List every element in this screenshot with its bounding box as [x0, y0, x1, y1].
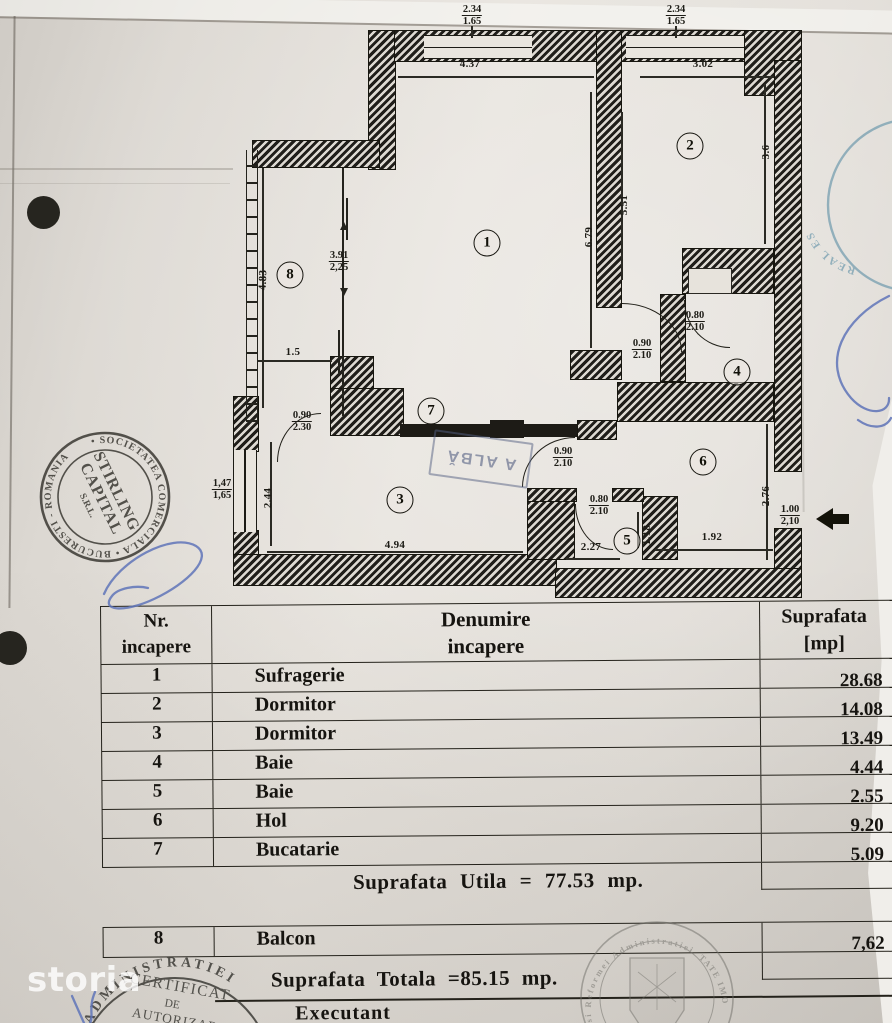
room-number: 7	[418, 398, 445, 425]
alba-rect-stamp: A ALBĂ	[428, 429, 533, 488]
dimension-fraction-label: 3.912,25	[329, 250, 349, 273]
dimension-label: 2.44	[262, 488, 274, 508]
wall	[617, 382, 774, 422]
dimension-fraction-label: 1.002,10	[780, 504, 800, 527]
suprafata-totala: Suprafata Totala =85.15 mp.	[271, 965, 558, 992]
window	[626, 35, 744, 59]
header-denumire: Denumireincapere	[212, 602, 759, 663]
dimension-label: 3.02	[693, 58, 713, 70]
wall	[527, 488, 577, 502]
dimension-fraction-label: 0.802.10	[685, 310, 705, 333]
wall	[774, 60, 802, 472]
wall	[527, 500, 575, 560]
wall-notch	[688, 268, 732, 294]
exterior-wall	[233, 554, 557, 586]
window	[424, 35, 532, 59]
scanned-floor-plan-document: A ALBĂ 4.373.023.65.516.794.831.52.444.9…	[0, 0, 892, 1023]
row-name: Dormitor	[213, 689, 760, 721]
dimension-line	[655, 549, 773, 551]
wall	[577, 420, 617, 440]
dimension-fraction-label: 2.341.65	[666, 4, 686, 27]
dimension-label: 4.37	[460, 58, 480, 70]
storia-watermark: storia	[27, 960, 141, 1000]
wall	[570, 350, 622, 380]
dimension-fraction-label: 2.341.65	[462, 4, 482, 27]
dimension-line	[764, 84, 766, 244]
row-area: 28.68	[759, 659, 892, 688]
balcony-glazing-line	[338, 330, 340, 374]
room-number: 1	[474, 230, 501, 257]
wall	[490, 420, 524, 438]
wall	[612, 488, 644, 502]
room-number: 5	[614, 528, 641, 555]
dimension-line	[398, 76, 594, 78]
row-nr: 3	[101, 722, 213, 751]
dimension-line	[640, 76, 774, 78]
dimension-label: 4.94	[385, 539, 405, 551]
dimension-fraction-label: 0.902.10	[553, 446, 573, 469]
row-name: Baie	[213, 747, 760, 779]
dimension-fraction-label: 1,471,65	[212, 478, 232, 501]
row-area: 9.20	[761, 804, 892, 833]
table-header-row: Nr.incapere Denumireincapere Suprafata[m…	[100, 600, 892, 664]
alba-stamp-text: A ALBĂ	[444, 445, 517, 473]
row-area: 14.08	[760, 688, 892, 717]
dimension-line	[267, 551, 523, 553]
room-number: 6	[690, 449, 717, 476]
row-nr: 7	[102, 838, 214, 867]
dimension-label: 2.76	[760, 486, 772, 506]
row-name: Hol	[214, 805, 761, 837]
room-number: 8	[277, 262, 304, 289]
balcony-glazing-line	[346, 198, 348, 240]
room-number: 3	[387, 487, 414, 514]
row-name: Bucatarie	[214, 834, 761, 866]
entrance-arrow	[831, 514, 849, 524]
dimension-fraction-label: 0.902.30	[292, 410, 312, 433]
row-name: Baie	[213, 776, 760, 808]
row-area: 2.55	[760, 775, 892, 804]
dimension-fraction-label: 0.902.10	[632, 338, 652, 361]
row-nr: 6	[102, 809, 214, 838]
header-suprafata: Suprafata[mp]	[759, 601, 892, 659]
balcony-wall	[252, 140, 380, 168]
dimension-line	[675, 26, 677, 38]
row-nr: 1	[100, 664, 212, 693]
dimension-label: 1.92	[702, 531, 722, 543]
header-nr: Nr.incapere	[100, 606, 212, 664]
dimension-label: 2.27	[581, 541, 601, 553]
dimension-label: 5.51	[618, 195, 630, 215]
dimension-arrow-up	[340, 222, 348, 230]
table-row-balcon: 8 Balcon 7,62	[103, 921, 892, 957]
row-name: Balcon	[215, 923, 762, 956]
dimension-line	[471, 26, 473, 38]
row-nr: 4	[101, 751, 213, 780]
table-line	[215, 995, 892, 1002]
dimension-label: 3.6	[760, 145, 772, 160]
row-area: 4.44	[760, 746, 892, 775]
dimension-arrow-down	[340, 288, 348, 296]
dimension-line	[590, 92, 592, 348]
dimension-label: 1.18	[641, 525, 653, 545]
window	[233, 450, 257, 532]
row-area: 5.09	[761, 833, 892, 862]
row-nr: 5	[101, 780, 213, 809]
dimension-fraction-label: 0.802.10	[589, 494, 609, 517]
room-number: 2	[677, 133, 704, 160]
row-name: Sufragerie	[212, 660, 759, 692]
area-table: Nr.incapere Denumireincapere Suprafata[m…	[100, 600, 892, 1023]
exterior-wall	[555, 568, 802, 598]
row-area: 7,62	[762, 922, 892, 952]
dimension-line	[566, 558, 620, 560]
dimension-label: 6.79	[583, 227, 595, 247]
row-area: 13.49	[760, 717, 892, 746]
room-number: 4	[724, 359, 751, 386]
row-nr: 2	[101, 693, 213, 722]
executant-label: Executant	[295, 1002, 391, 1023]
dimension-line	[258, 360, 332, 362]
dimension-label: 1.5	[286, 346, 301, 358]
row-name: Dormitor	[213, 718, 760, 750]
dimension-label: 4.83	[257, 270, 270, 291]
row-nr: 8	[103, 927, 215, 957]
wall	[596, 30, 622, 308]
